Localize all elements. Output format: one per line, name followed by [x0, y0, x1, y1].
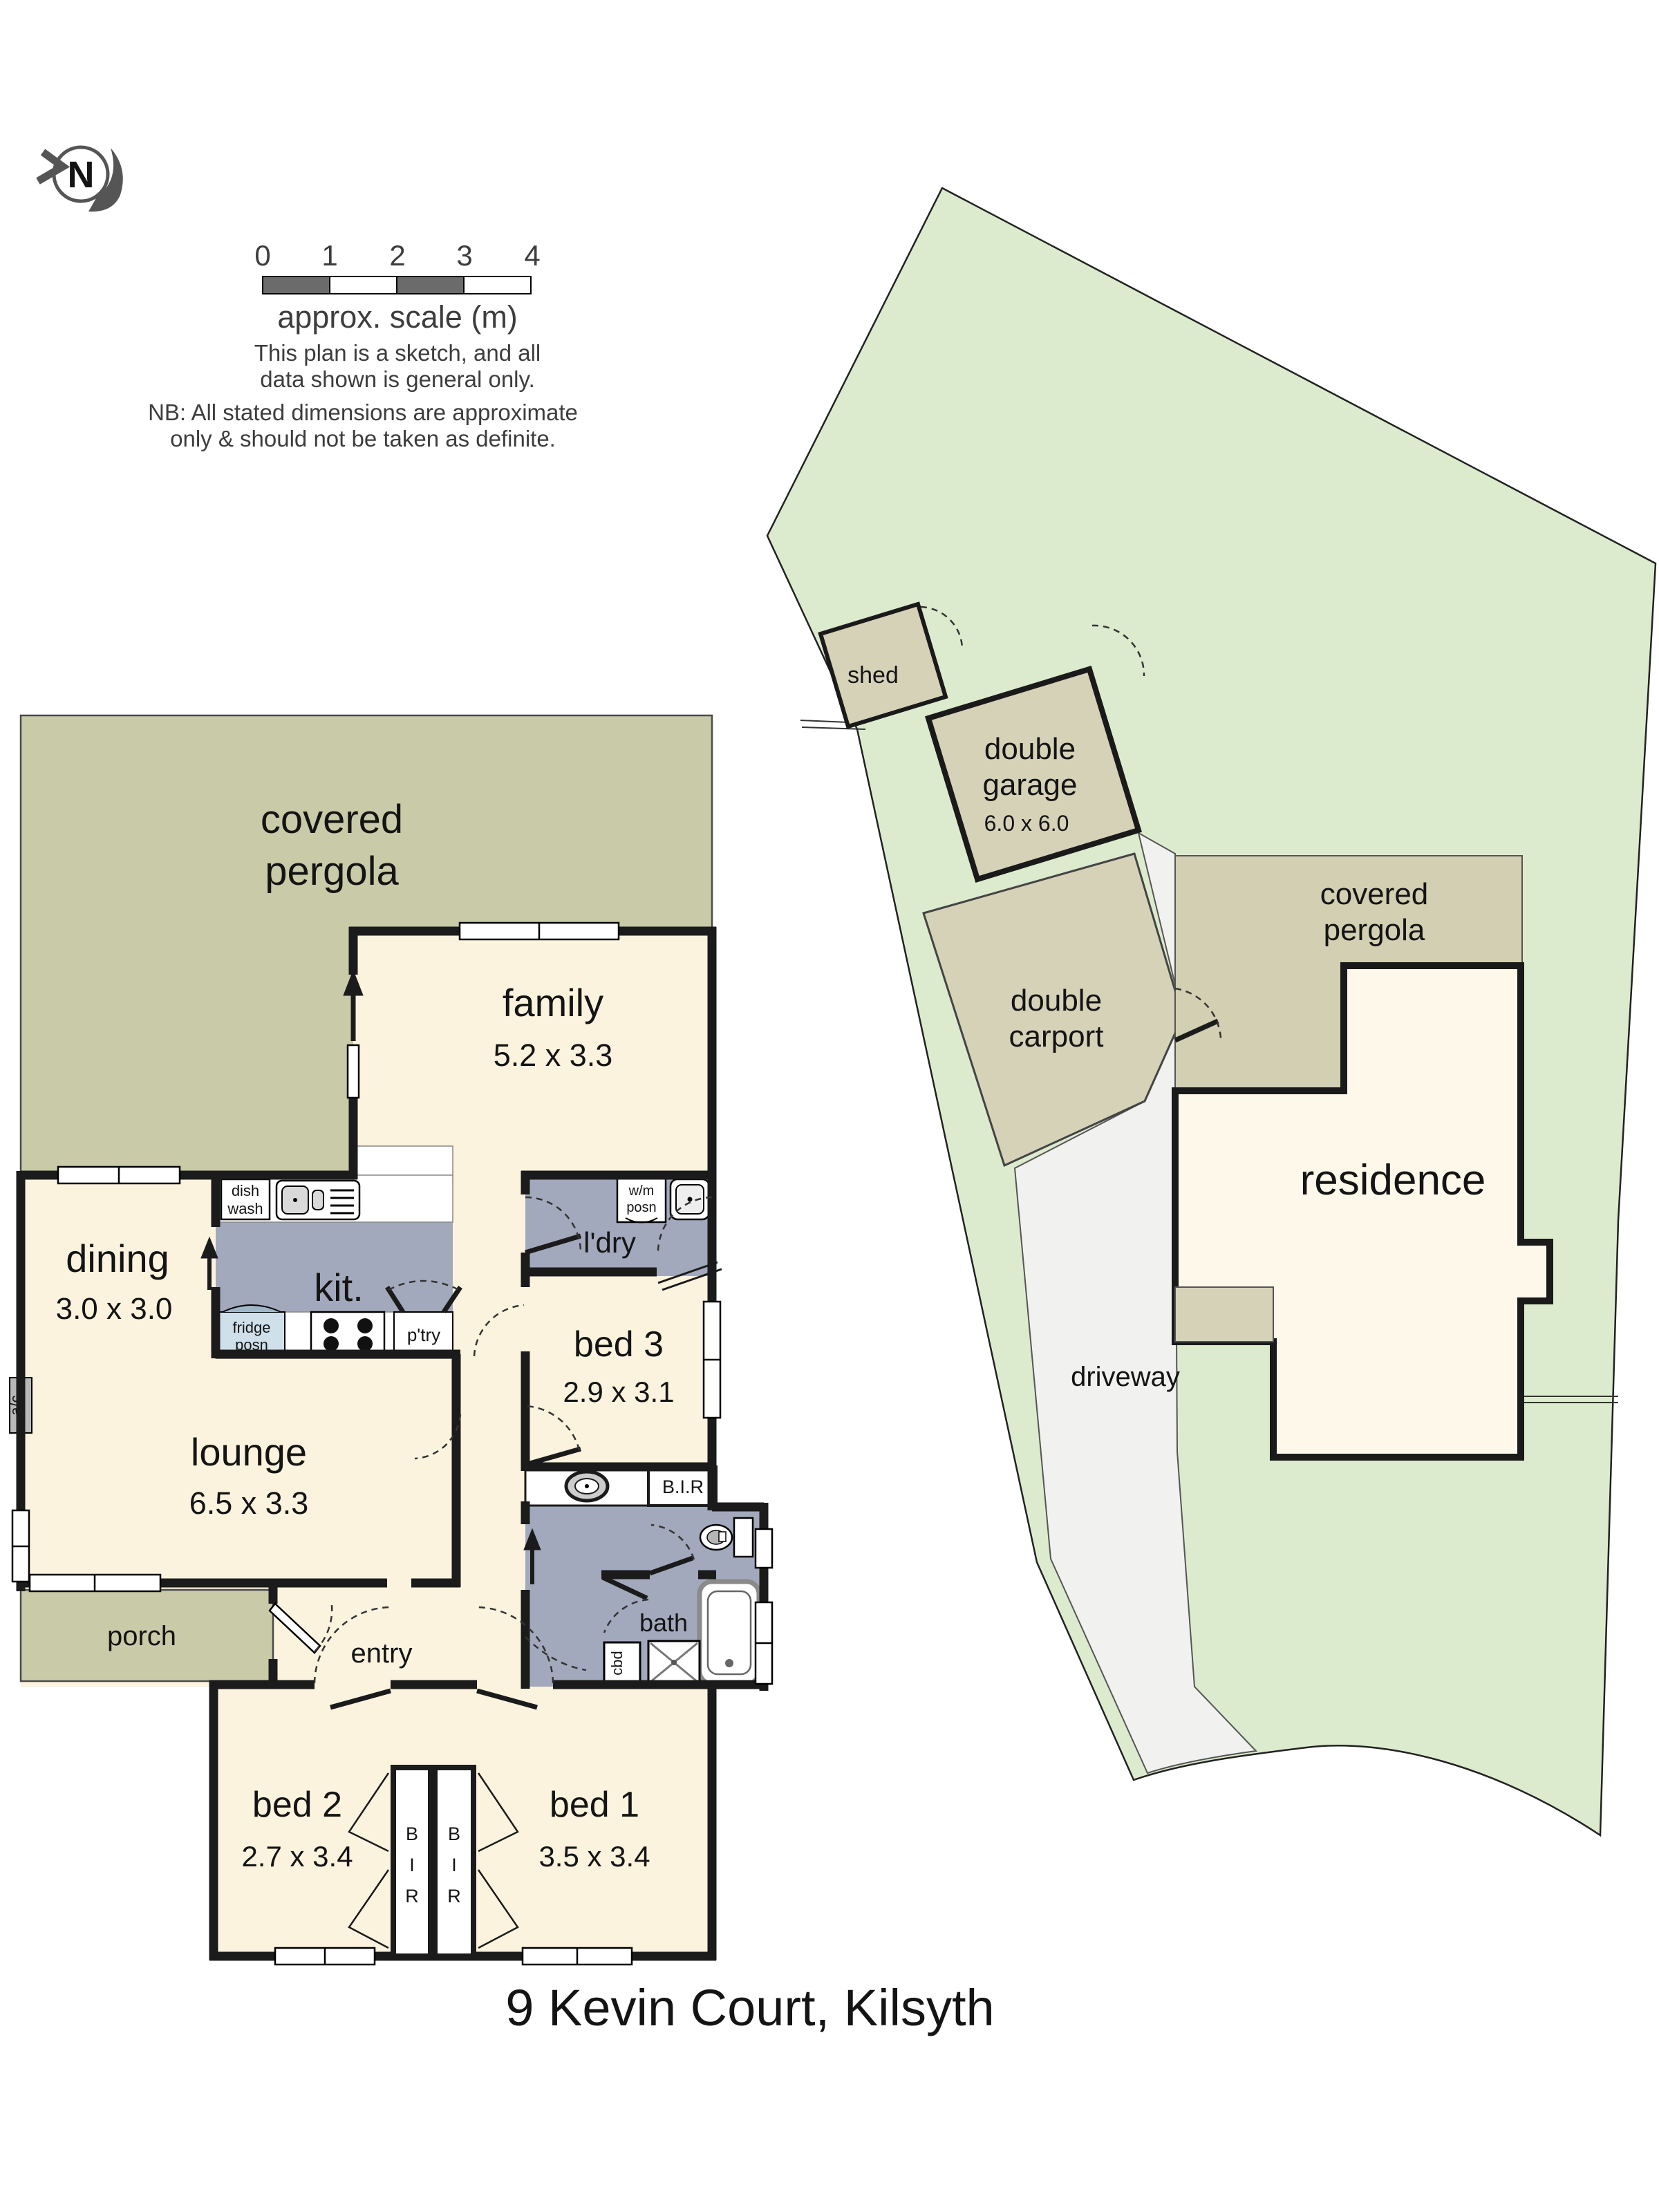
- sketch-note-2: data shown is general only.: [260, 366, 534, 392]
- lounge-dims: 6.5 x 3.3: [189, 1485, 309, 1521]
- north-letter: N: [68, 154, 95, 196]
- carport-label-2: carport: [1009, 1020, 1104, 1053]
- cbd-label: cbd: [608, 1651, 626, 1675]
- bir-label: B.I.R: [662, 1477, 704, 1497]
- pergola-label-1: covered: [261, 797, 403, 842]
- pergola-label-2: pergola: [265, 849, 399, 894]
- scale-tick: 0: [254, 239, 270, 272]
- sink-icon: [276, 1181, 359, 1219]
- bed1-label: bed 1: [550, 1785, 639, 1825]
- wm-label: posn: [626, 1200, 656, 1215]
- floorplan-page: N 0 1 2 3 4 approx. scale (m) This plan …: [0, 0, 1659, 2212]
- garage-dims: 6.0 x 6.0: [984, 811, 1069, 836]
- family-dims: 5.2 x 3.3: [494, 1038, 613, 1073]
- bir-letter: B: [448, 1824, 460, 1844]
- entry-label: entry: [351, 1638, 413, 1669]
- scale-caption: approx. scale (m): [277, 299, 518, 335]
- scale-tick: 4: [524, 239, 540, 272]
- bed1-dims: 3.5 x 3.4: [538, 1840, 650, 1873]
- nb-note-2: only & should not be taken as definite.: [170, 426, 556, 451]
- fridge-label: fridge: [232, 1319, 270, 1336]
- bed2-label: bed 2: [252, 1785, 342, 1825]
- garage-label-2: garage: [982, 768, 1077, 802]
- cupboard: cbd: [604, 1642, 640, 1684]
- pantry-label: p'try: [407, 1324, 440, 1345]
- vanity: [525, 1467, 648, 1506]
- bath-label: bath: [639, 1609, 688, 1637]
- bir-letter: R: [405, 1886, 419, 1906]
- stove-icon: [311, 1312, 384, 1356]
- kitchen-label: kit.: [314, 1266, 364, 1309]
- laundry-label: l'dry: [583, 1226, 636, 1259]
- bed3-label: bed 3: [574, 1324, 664, 1365]
- floor-plan: dish wash fridge posn p'try: [7, 715, 772, 1965]
- bathtub-icon: [700, 1582, 759, 1684]
- site-plan: shed double garage 6.0 x 6.0 double carp…: [767, 188, 1656, 1835]
- bir-letter: I: [409, 1855, 415, 1875]
- bed3-dims: 2.9 x 3.1: [563, 1376, 674, 1408]
- site-pergola-label-2: pergola: [1324, 913, 1425, 947]
- scale-tick: 2: [389, 239, 405, 272]
- dishwasher: dish wash: [221, 1179, 270, 1219]
- shed-label: shed: [847, 662, 899, 688]
- page-title: 9 Kevin Court, Kilsyth: [505, 1979, 994, 2036]
- porch-label: porch: [107, 1621, 176, 1651]
- dining-dims: 3.0 x 3.0: [56, 1292, 173, 1326]
- pantry: p'try: [394, 1312, 453, 1356]
- washing-machine-position: w/m posn: [617, 1178, 666, 1223]
- laundry-trough-icon: [671, 1179, 709, 1219]
- wm-label: w/m: [628, 1183, 655, 1199]
- dining-label: dining: [66, 1237, 169, 1280]
- residence-label: residence: [1300, 1156, 1486, 1204]
- site-porch-area: [1175, 1287, 1273, 1342]
- nb-note-1: NB: All stated dimensions are approximat…: [148, 400, 578, 425]
- bir-letter: B: [406, 1824, 418, 1844]
- north-arrow-icon: N: [38, 147, 123, 212]
- scale-tick: 3: [456, 239, 472, 272]
- family-label: family: [503, 981, 603, 1024]
- garage-label-1: double: [984, 732, 1076, 766]
- scale-tick: 1: [321, 239, 337, 272]
- dishwasher-label: wash: [227, 1200, 263, 1217]
- bed2-dims: 2.7 x 3.4: [241, 1840, 353, 1873]
- bir-letter: I: [451, 1855, 457, 1875]
- sketch-note-1: This plan is a sketch, and all: [254, 340, 541, 366]
- built-in-robe-bed3: B.I.R: [648, 1467, 716, 1506]
- lounge-label: lounge: [191, 1430, 307, 1474]
- shower-icon: [648, 1641, 700, 1684]
- fridge-position: fridge posn: [218, 1305, 285, 1356]
- dishwasher-label: dish: [232, 1182, 259, 1199]
- scale-bar: 0 1 2 3 4: [254, 239, 540, 294]
- bir-letter: R: [447, 1886, 461, 1906]
- site-pergola-label-1: covered: [1320, 877, 1429, 911]
- carport-label-1: double: [1011, 984, 1102, 1018]
- driveway-label: driveway: [1071, 1362, 1180, 1392]
